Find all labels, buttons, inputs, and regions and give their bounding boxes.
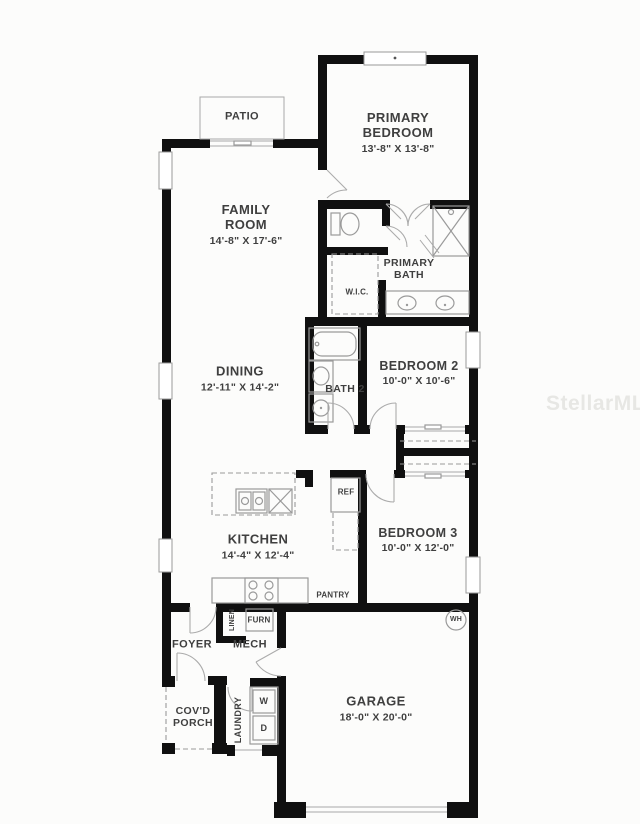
label-covd-porch: COV'D PORCH: [167, 705, 219, 729]
wic-outline: [332, 254, 378, 314]
label-washer: W: [256, 696, 272, 706]
garage-door: [306, 807, 447, 812]
toilet-icon-primary: [331, 213, 359, 235]
stove-icon: [245, 578, 278, 603]
floorplan-image: PATIO PRIMARY BEDROOM 13'-8" X 13'-8" FA…: [0, 0, 640, 824]
label-patio: PATIO: [202, 111, 282, 124]
label-dining: DINING 12'-11" X 14'-2": [185, 365, 295, 394]
label-primary-bedroom: PRIMARY BEDROOM 13'-8" X 13'-8": [346, 111, 450, 155]
label-bath2: BATH 2: [325, 383, 365, 395]
kitchen-island: [212, 473, 295, 515]
stellar-mls-watermark: StellarMLS: [546, 392, 640, 416]
label-kitchen: KITCHEN 14'-4" X 12'-4": [203, 533, 313, 562]
label-bedroom2: BEDROOM 2 10'-0" X 10'-6": [369, 359, 469, 387]
label-dryer: D: [256, 723, 272, 733]
vanity-double-sink: [386, 291, 469, 314]
label-foyer: FOYER: [162, 639, 222, 652]
shower-icon: [420, 206, 469, 258]
label-furn: FURN: [244, 615, 274, 624]
label-water-heater: WH: [446, 616, 466, 624]
label-pantry: PANTRY: [309, 590, 357, 599]
label-mech: MECH: [225, 639, 275, 652]
label-wic: W.I.C.: [337, 287, 377, 296]
label-bedroom3: BEDROOM 3 10'-0" X 12'-0": [368, 526, 468, 554]
label-linen: LINEN: [229, 609, 237, 631]
door-swings: [177, 170, 430, 711]
label-primary-bath: PRIMARY BATH: [377, 257, 441, 281]
label-garage: GARAGE 18'-0" X 20'-0": [316, 695, 436, 724]
label-ref: REF: [331, 487, 361, 496]
label-family-room: FAMILY ROOM 14'-8" X 17'-6": [201, 203, 291, 247]
tub-icon: [309, 328, 360, 360]
kitchen-counter: [212, 578, 308, 603]
label-laundry: LAUNDRY: [233, 697, 243, 743]
